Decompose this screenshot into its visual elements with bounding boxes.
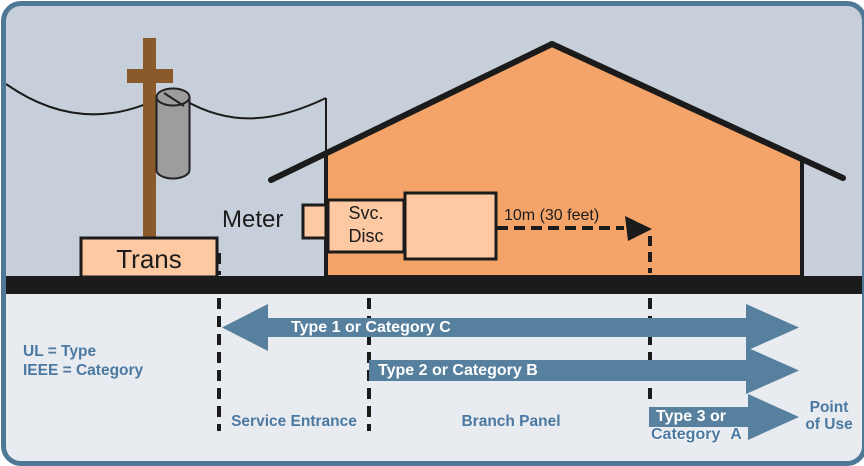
- power-line-left: [6, 84, 162, 114]
- point-of-use-line1: Point: [798, 400, 860, 417]
- meter-box: [303, 205, 326, 238]
- transformer-label: Trans: [81, 244, 217, 275]
- utility-pole: [143, 38, 156, 240]
- diagram-frame: Meter Trans Svc. Disc 10m (30 feet) UL =…: [1, 1, 864, 466]
- diagram-drawing: [1, 1, 864, 466]
- branch-panel-label: Branch Panel: [436, 413, 586, 431]
- pole-transformer-top: [157, 89, 190, 106]
- ground-line: [1, 276, 864, 294]
- service-disconnect-label: Svc. Disc: [328, 202, 404, 248]
- diagram-canvas: Meter Trans Svc. Disc 10m (30 feet) UL =…: [0, 0, 864, 466]
- service-entrance-label: Service Entrance: [219, 413, 369, 431]
- type2-arrow-label: Type 2 or Category B: [378, 362, 538, 380]
- pole-crossarm: [127, 69, 173, 83]
- meter-label: Meter: [222, 206, 283, 234]
- distance-label: 10m (30 feet): [504, 207, 599, 225]
- branch-panel-box: [405, 193, 496, 259]
- type3-arrow-label: Type 3 or: [656, 408, 726, 426]
- type1-arrow-label: Type 1 or Category C: [291, 319, 451, 337]
- legend-ieee-category: IEEE = Category: [23, 362, 143, 380]
- diagram-scene: Meter Trans Svc. Disc 10m (30 feet) UL =…: [1, 1, 864, 466]
- pole-transformer-body: [157, 97, 190, 179]
- point-of-use-line2: of Use: [798, 417, 860, 434]
- point-of-use-label: Point of Use: [798, 400, 860, 433]
- service-disconnect-label-line1: Svc.: [328, 202, 404, 225]
- legend-ul-type: UL = Type: [23, 343, 96, 361]
- power-line-right: [186, 98, 326, 118]
- service-disconnect-label-line2: Disc: [328, 225, 404, 248]
- type3-arrow-sublabel: Category A: [651, 426, 742, 444]
